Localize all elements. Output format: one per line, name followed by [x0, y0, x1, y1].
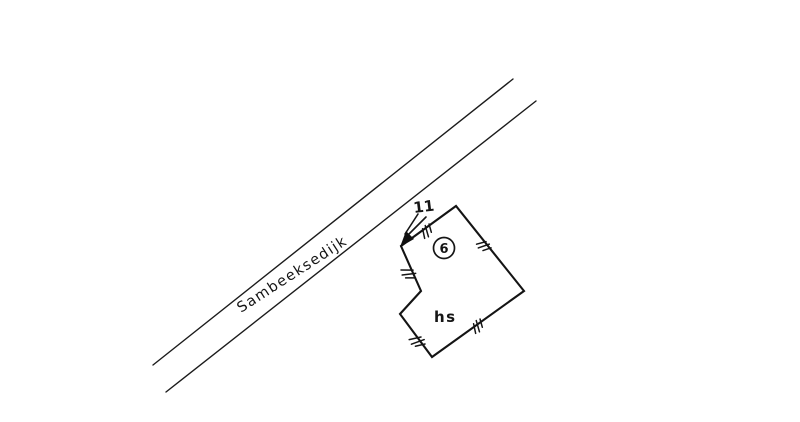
callout-arrowhead [400, 231, 414, 247]
building-parcel: 6 hs [400, 206, 524, 357]
boundary-hatch-lower-left-edge [408, 332, 426, 350]
house-number-label: 11 [412, 197, 435, 217]
road-name-label: Sambeeksedijk [234, 233, 350, 316]
boundary-hatch-left-edge [400, 265, 417, 282]
sketch-canvas: Sambeeksedijk [0, 0, 800, 422]
parcel-number-badge: 6 [434, 238, 455, 259]
building-use-label: hs [434, 308, 457, 326]
cadastral-sketch: Sambeeksedijk [0, 0, 800, 422]
parcel-number-label: 6 [439, 242, 448, 257]
road-edge-upper-line [153, 79, 513, 365]
building-outline [400, 206, 524, 357]
